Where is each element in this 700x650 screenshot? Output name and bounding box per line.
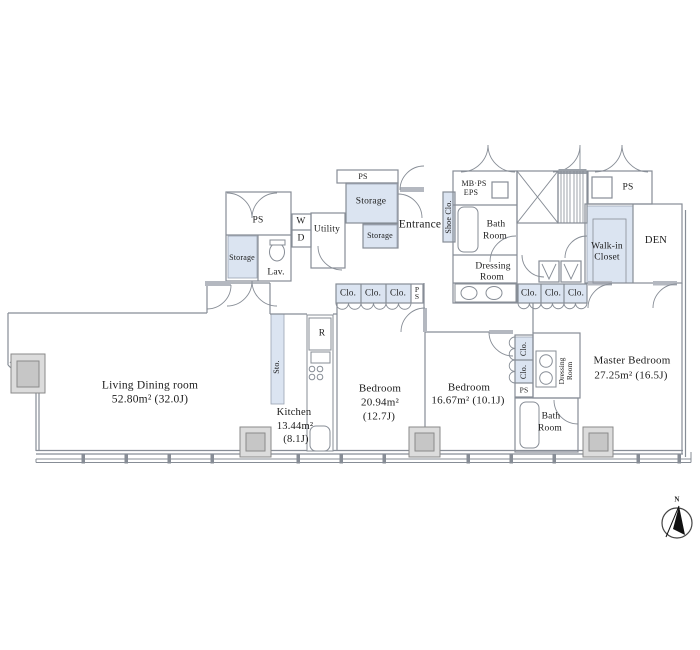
label-closet-b1-1: Clo. — [340, 289, 356, 298]
label-master-name: Master Bedroom — [593, 356, 670, 367]
label-lavatory: Lav. — [267, 268, 284, 278]
label-mb-ps: MB·PS — [461, 180, 486, 188]
kitchen-drawer — [311, 352, 330, 363]
sink — [540, 355, 553, 368]
label-bath-lower-room: Room — [538, 424, 562, 434]
label-bath-upper: Bath — [487, 220, 506, 230]
label-closet-m-1: Clo. — [521, 289, 537, 298]
label-closet-m-3: Clo. — [568, 289, 584, 298]
label-closet-b2-1: Clo. — [520, 342, 528, 356]
label-kitchen-jo: (8.1J) — [283, 435, 308, 446]
label-dressing-lower: Dressing Room — [558, 358, 575, 385]
label-kitchen-name: Kitchen — [277, 408, 312, 419]
label-ps-b1: PS — [413, 286, 421, 300]
label-compass-north: N — [674, 497, 679, 504]
label-dryer: D — [297, 234, 304, 244]
label-ps-upper-left: PS — [253, 216, 264, 226]
label-storage-small: Storage — [367, 232, 393, 240]
label-bath-lower: Bath — [542, 412, 561, 422]
label-closet-b1-2: Clo. — [365, 289, 381, 298]
label-eps: EPS — [464, 189, 478, 197]
label-bedroom1-name: Bedroom — [359, 384, 401, 395]
stairs-landing — [559, 169, 587, 174]
toilet — [270, 243, 285, 261]
label-master-area: 27.25m² (16.5J) — [594, 371, 667, 382]
label-storage-left: Storage — [229, 254, 255, 262]
label-den: DEN — [645, 236, 667, 247]
label-closet-m-2: Clo. — [545, 289, 561, 298]
label-utility: Utility — [314, 225, 340, 235]
label-dressing-lower-line2: Room — [566, 358, 574, 385]
label-shoe-closet: Shoe Clo. — [445, 200, 453, 233]
sink — [486, 287, 502, 300]
stairs-treads — [561, 171, 583, 223]
label-entrance: Entrance — [399, 219, 441, 231]
compass-needle — [673, 506, 685, 535]
toilet-tank — [270, 240, 285, 245]
label-dressing-upper: Dressing — [475, 262, 510, 272]
label-bedroom1-jo: (12.7J) — [363, 412, 395, 423]
bathtub-lower — [520, 402, 539, 448]
label-living-area: 52.80m² (32.0J) — [112, 394, 188, 406]
label-ps-top-right: PS — [623, 183, 634, 193]
shaft-vents — [542, 264, 578, 279]
floor-plan: PS Storage Lav. W D Utility PS Storage S… — [0, 0, 700, 650]
label-ps-b2: PS — [520, 386, 529, 394]
burner — [309, 374, 315, 380]
label-washer: W — [296, 217, 305, 227]
compass — [662, 506, 692, 538]
label-refrigerator: R — [319, 329, 326, 339]
elevator-cross — [517, 171, 558, 223]
label-bath-upper-room: Room — [483, 232, 507, 242]
burner — [317, 374, 323, 380]
burner — [317, 366, 323, 372]
label-living-name: Living Dining room — [102, 380, 198, 392]
label-closet-b2-2: Clo. — [520, 365, 528, 379]
label-bedroom2-area: 16.67m² (10.1J) — [431, 396, 504, 407]
label-storage-strip: Sto. — [273, 360, 281, 373]
label-kitchen-area: 13.44m² — [277, 422, 313, 433]
label-walk-in-closet: Closet — [594, 253, 619, 263]
label-bedroom2-name: Bedroom — [448, 383, 490, 394]
label-closet-b1-3: Clo. — [390, 289, 406, 298]
label-ps-strip: PS — [358, 173, 367, 181]
label-dressing-upper-room: Room — [480, 273, 504, 283]
label-bedroom1-area: 20.94m² — [361, 398, 399, 409]
sink — [540, 372, 553, 385]
label-storage-main: Storage — [356, 197, 386, 207]
burner — [309, 366, 315, 372]
floorplan-svg — [0, 0, 700, 650]
label-walk-in: Walk-in — [591, 242, 623, 252]
sink — [461, 287, 477, 300]
bathtub-upper — [458, 207, 478, 252]
